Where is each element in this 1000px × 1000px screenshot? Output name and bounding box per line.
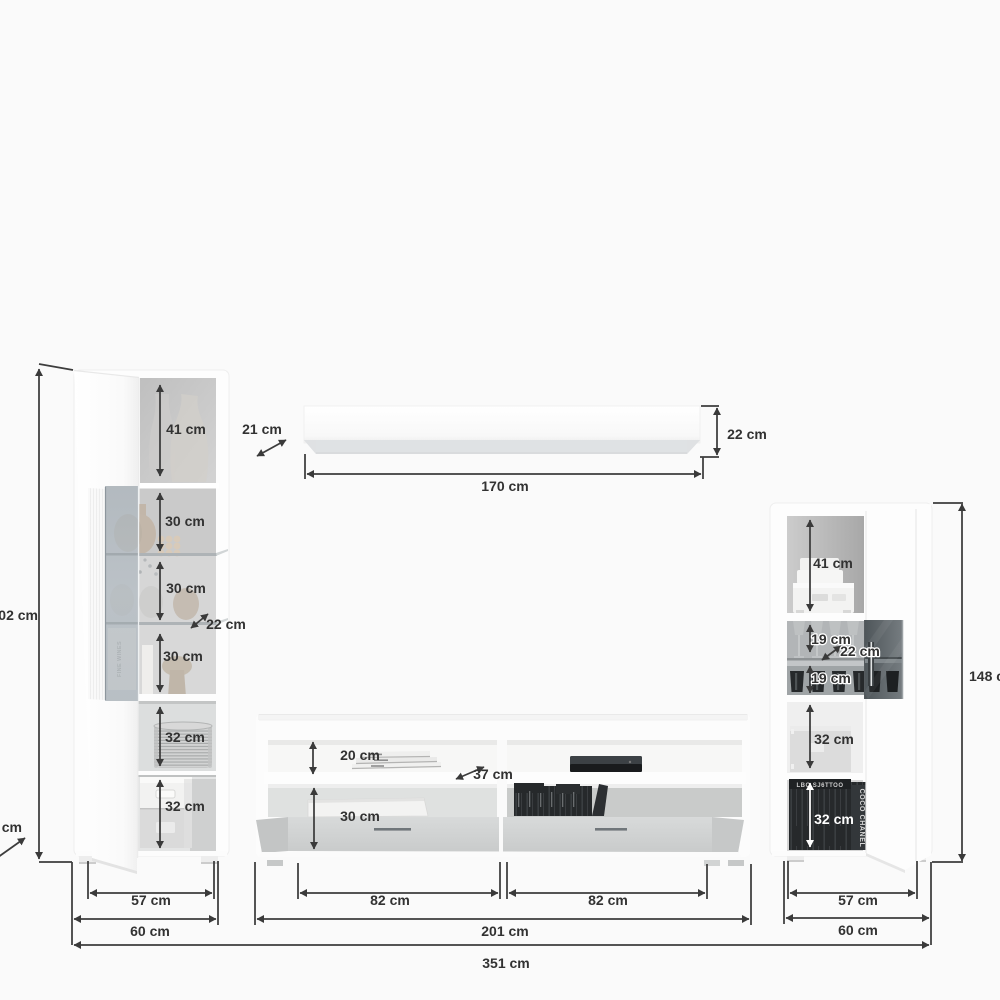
svg-text:20 cm: 20 cm: [340, 747, 380, 763]
svg-text:22 cm: 22 cm: [727, 426, 767, 442]
svg-text:30 cm: 30 cm: [340, 808, 380, 824]
svg-text:202 cm: 202 cm: [0, 607, 38, 623]
svg-text:148 cm: 148 cm: [969, 668, 1000, 684]
svg-text:60 cm: 60 cm: [130, 923, 170, 939]
svg-text:32 cm: 32 cm: [165, 798, 205, 814]
svg-text:351 cm: 351 cm: [482, 955, 529, 971]
svg-text:41 cm: 41 cm: [166, 421, 206, 437]
svg-text:COCO CHANEL: COCO CHANEL: [858, 789, 865, 848]
svg-text:19 cm: 19 cm: [811, 670, 851, 686]
svg-text:32 cm: 32 cm: [165, 729, 205, 745]
svg-text:LBO SJ6TTOO: LBO SJ6TTOO: [796, 783, 843, 789]
svg-text:22 cm: 22 cm: [206, 616, 246, 632]
svg-text:170 cm: 170 cm: [481, 478, 528, 494]
svg-text:21 cm: 21 cm: [242, 421, 282, 437]
svg-text:22 cm: 22 cm: [840, 643, 880, 659]
svg-text:32 cm: 32 cm: [814, 811, 854, 827]
svg-text:30 cm: 30 cm: [165, 513, 205, 529]
svg-text:57 cm: 57 cm: [131, 892, 171, 908]
svg-text:82 cm: 82 cm: [588, 892, 628, 908]
svg-text:30 cm: 30 cm: [166, 580, 206, 596]
svg-text:201 cm: 201 cm: [481, 923, 528, 939]
svg-text:41 cm: 41 cm: [813, 555, 853, 571]
svg-text:30 cm: 30 cm: [163, 648, 203, 664]
svg-text:40 cm: 40 cm: [0, 819, 22, 835]
svg-text:37 cm: 37 cm: [473, 766, 513, 782]
svg-text:82 cm: 82 cm: [370, 892, 410, 908]
svg-text:60 cm: 60 cm: [838, 922, 878, 938]
svg-text:57 cm: 57 cm: [838, 892, 878, 908]
svg-text:32 cm: 32 cm: [814, 731, 854, 747]
